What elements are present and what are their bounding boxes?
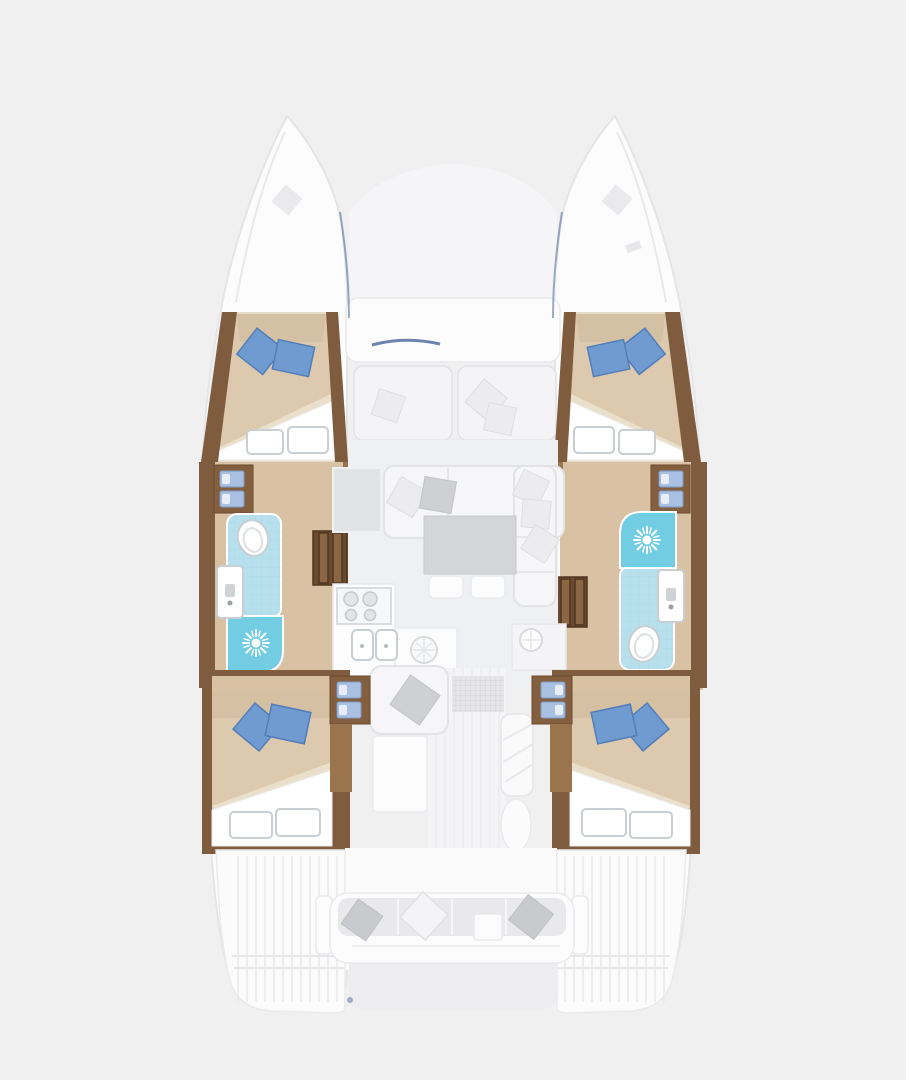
cabin-aft-port — [202, 670, 370, 854]
galley-back-counter — [333, 468, 381, 532]
sideboard-starboard — [512, 624, 566, 670]
stove-burner-icon — [346, 610, 357, 621]
foot-cushion — [276, 809, 320, 836]
bathroom-port — [217, 514, 283, 672]
catamaran-floorplan-image — [0, 0, 906, 1080]
stool — [429, 576, 463, 598]
foot-cushion — [230, 812, 272, 838]
storage-steps — [330, 676, 370, 724]
aft-walkway — [370, 666, 533, 860]
step-tread-icon — [659, 491, 683, 507]
cockpit-table — [474, 914, 502, 940]
shower-rose-icon — [634, 527, 660, 553]
sofa-cushion — [419, 476, 456, 513]
stove-icon — [337, 588, 391, 624]
step-tread-icon — [220, 471, 244, 487]
foot-cushion — [247, 430, 283, 454]
floorplan-svg — [0, 0, 906, 1080]
step-tread-icon — [659, 471, 683, 487]
shower-rose-icon — [243, 630, 269, 656]
storage-steps-port — [214, 465, 253, 513]
sun-pad — [373, 736, 427, 812]
scatter-cushion — [483, 402, 516, 435]
trampoline-foredeck — [346, 164, 560, 362]
curved-steps — [501, 714, 533, 851]
hatch-icon — [411, 637, 437, 663]
foot-cushion — [288, 427, 328, 453]
cleat-mark — [347, 997, 353, 1003]
saloon — [333, 440, 566, 700]
stove-burner-icon — [363, 592, 377, 606]
step-tread-icon — [337, 702, 361, 718]
stove-burner-icon — [365, 610, 376, 621]
cabin-forward-port — [201, 312, 348, 462]
step-tread-icon — [220, 491, 244, 507]
bathroom-starboard — [620, 512, 684, 670]
washbasin-icon — [217, 566, 243, 618]
storage-steps-starboard — [651, 465, 690, 513]
saloon-table — [424, 516, 516, 574]
cabin-forward-starboard — [554, 312, 701, 462]
aft-cockpit — [216, 848, 686, 1013]
washbasin-icon — [658, 570, 684, 622]
cabin-aft-starboard — [532, 670, 700, 854]
stove-burner-icon — [344, 592, 358, 606]
step-tread-icon — [337, 682, 361, 698]
cockpit-bench — [316, 892, 588, 963]
stool — [471, 576, 505, 598]
